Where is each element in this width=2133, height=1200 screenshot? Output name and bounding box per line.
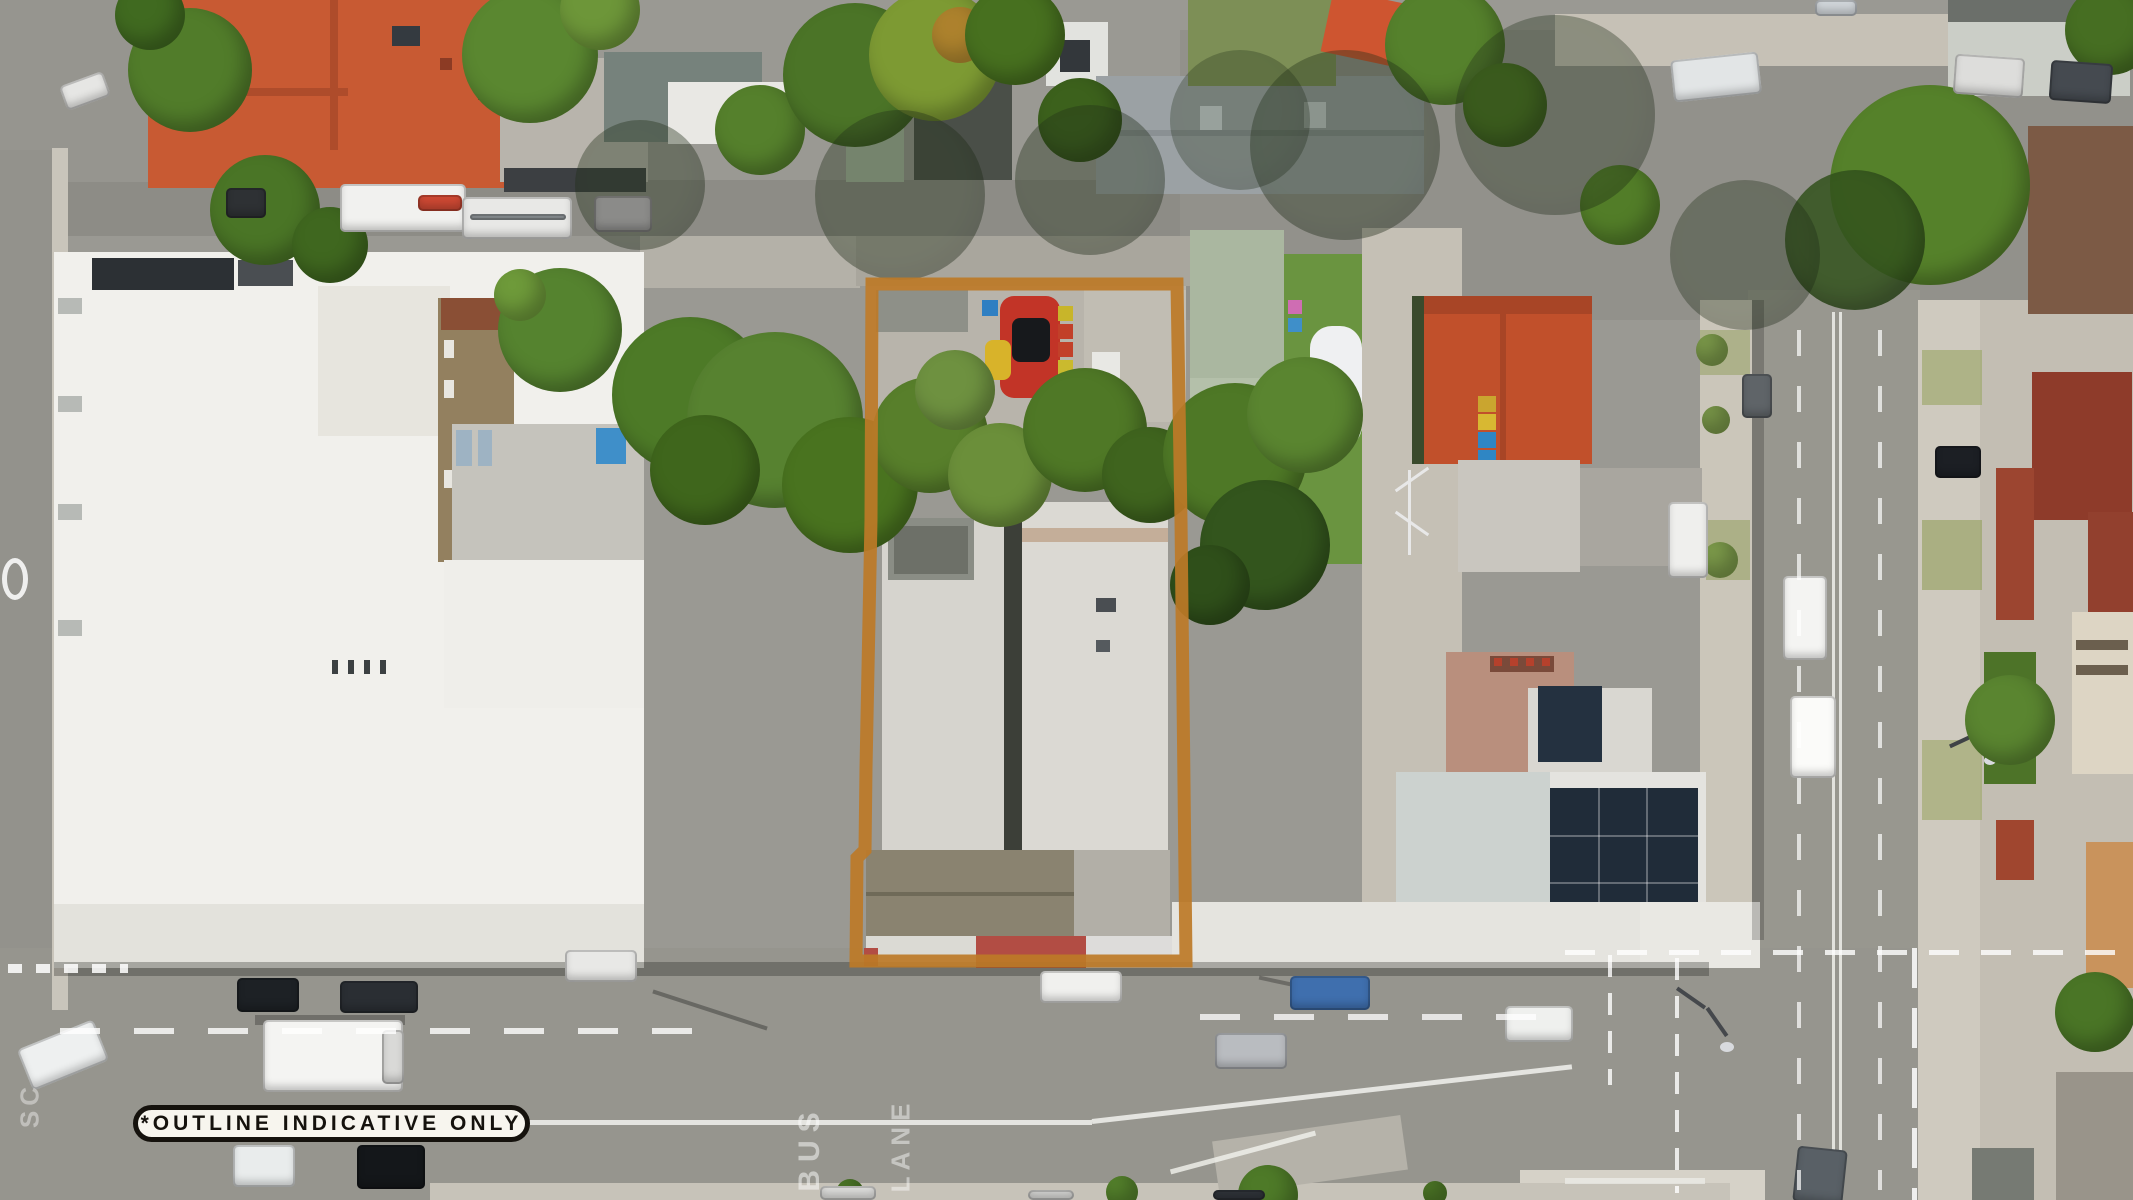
car	[470, 214, 566, 220]
roof-deck-inner	[894, 526, 968, 574]
crate	[1058, 306, 1073, 321]
awning-shadow	[54, 962, 1709, 976]
lamp-head	[1720, 1042, 1734, 1052]
car	[1040, 971, 1122, 1003]
white-roof-strip	[444, 560, 644, 708]
chimney-pot	[1526, 658, 1534, 666]
tree-canopy	[915, 350, 995, 430]
brown-tile-roof	[2028, 126, 2133, 314]
car	[1953, 54, 2026, 99]
shop-awning	[54, 904, 644, 968]
tree-canopy	[1965, 675, 2055, 765]
terracotta-hip-roof	[1424, 296, 1592, 464]
window-row	[2076, 665, 2128, 675]
cream-house	[2072, 612, 2133, 774]
lane-dash-line	[1565, 950, 2130, 955]
yard-toy	[1288, 300, 1302, 314]
corner-shop-awning	[1640, 902, 1760, 968]
lane-dash-line	[1675, 958, 1679, 1193]
grey-panel-roof	[1074, 850, 1170, 940]
south-footpath	[430, 1183, 1730, 1200]
road-oval-marking	[2, 558, 28, 600]
red-tile-roof-far	[2088, 512, 2133, 620]
terracotta-ridge	[330, 0, 338, 150]
car	[1213, 1190, 1265, 1200]
terracotta-ridge	[1424, 296, 1592, 314]
lane-dash-line	[1878, 330, 1882, 1190]
grey-roof-bottom	[2056, 1072, 2133, 1200]
terracotta-hip-line	[1500, 296, 1506, 464]
stop-bar	[1565, 1178, 1705, 1184]
crate	[1058, 342, 1073, 357]
lane-dash-line	[8, 964, 128, 973]
car	[226, 188, 266, 218]
car	[340, 981, 418, 1013]
rust-band	[1020, 528, 1168, 542]
lane-dash-line	[1200, 1014, 1560, 1020]
window	[444, 380, 454, 398]
roof-vent	[348, 660, 354, 674]
tree-canopy	[1170, 545, 1250, 625]
lane-dash-line	[1912, 948, 1917, 1200]
tree-canopy	[1696, 334, 1728, 366]
grey-roof-a	[1458, 460, 1580, 572]
tree-canopy	[1670, 180, 1820, 330]
roof-vent	[380, 660, 386, 674]
road-paint-text: BUS	[793, 1104, 827, 1191]
red-tile-roof-far	[2032, 372, 2132, 520]
car	[2049, 60, 2114, 104]
solar-array	[1538, 686, 1602, 762]
hut-opening	[1060, 40, 1090, 72]
red-car-roof	[1012, 318, 1050, 362]
crate	[1478, 414, 1496, 430]
crate	[1478, 396, 1496, 412]
tree-canopy	[1170, 50, 1310, 190]
tree-canopy	[650, 415, 760, 525]
grass-patch	[1922, 740, 1982, 820]
ac-unit	[1096, 640, 1110, 652]
chimney	[440, 58, 452, 70]
car	[1505, 1006, 1573, 1042]
crate	[1478, 432, 1496, 448]
awning-bracket	[58, 396, 82, 412]
chimney-pot	[1494, 658, 1502, 666]
tree-canopy	[1702, 406, 1730, 434]
chimney-pot	[1542, 658, 1550, 666]
car	[1815, 0, 1857, 16]
tree-canopy	[1015, 105, 1165, 255]
wheelie-bin	[982, 300, 998, 316]
warehouse-roof-right	[1020, 502, 1168, 888]
aerial-photo: BUSLANESC *OUTLINE INDICATIVE ONLY	[0, 0, 2133, 1200]
awning-bracket	[58, 620, 82, 636]
grass-patch	[1922, 350, 1982, 405]
window	[444, 340, 454, 358]
car	[565, 950, 637, 982]
tree-canopy	[1423, 1181, 1447, 1200]
ac-unit	[1096, 598, 1116, 612]
shop-awning-east	[1172, 902, 1704, 968]
tree-canopy	[1106, 1176, 1138, 1200]
white-gable-roof	[318, 286, 450, 436]
lane-shed-strip	[640, 236, 860, 288]
solid-lane-line	[432, 1120, 1092, 1125]
car	[820, 1186, 876, 1200]
solar-grid-line	[1550, 882, 1698, 884]
porch-roof	[1996, 820, 2034, 880]
outline-disclaimer-text: *OUTLINE INDICATIVE ONLY	[141, 1112, 523, 1136]
grass-patch	[1922, 520, 1982, 590]
roof-skylight	[456, 430, 472, 466]
tree-canopy	[494, 269, 546, 321]
road-paint-text: LANE	[886, 1098, 917, 1193]
tree-canopy	[1247, 357, 1363, 473]
roof-skylight	[478, 430, 492, 466]
tree-canopy	[1455, 15, 1655, 215]
orange-building	[2086, 842, 2133, 988]
car	[1742, 374, 1772, 418]
roof-vent	[364, 660, 370, 674]
chimney-pot	[1510, 658, 1518, 666]
window-row	[2076, 640, 2128, 650]
car	[1668, 502, 1708, 578]
centre-line	[1839, 312, 1842, 1200]
car	[1935, 446, 1981, 478]
porch-roof	[1996, 468, 2034, 620]
car	[357, 1145, 425, 1189]
garage-roof	[876, 290, 968, 332]
roof-gap-shadow	[1004, 518, 1022, 902]
outline-disclaimer-badge: *OUTLINE INDICATIVE ONLY	[133, 1105, 530, 1142]
car	[594, 196, 652, 232]
car	[237, 978, 299, 1012]
car	[1783, 576, 1827, 660]
tree-canopy	[2055, 972, 2133, 1052]
solar-water-heater	[92, 258, 234, 290]
crate	[1058, 324, 1073, 339]
roof-skylight	[392, 26, 420, 46]
car	[1215, 1033, 1287, 1069]
car	[1290, 976, 1370, 1010]
awning-bracket	[58, 298, 82, 314]
car	[233, 1145, 295, 1187]
car	[1028, 1190, 1074, 1200]
yard-toy	[1288, 318, 1302, 332]
road-paint-text: SC	[15, 1082, 46, 1128]
tree-canopy	[815, 110, 985, 280]
lane-dash-line	[60, 1028, 700, 1034]
car	[382, 1030, 404, 1084]
roof-vent	[332, 660, 338, 674]
grey-roof-bottom	[1972, 1148, 2034, 1200]
shingle-ridge	[866, 892, 1074, 896]
lane-dash-line	[1797, 330, 1801, 1190]
solar-grid-line	[1550, 835, 1698, 837]
car	[418, 195, 462, 211]
awning-bracket	[58, 504, 82, 520]
lane-dash-line	[1608, 955, 1612, 1085]
